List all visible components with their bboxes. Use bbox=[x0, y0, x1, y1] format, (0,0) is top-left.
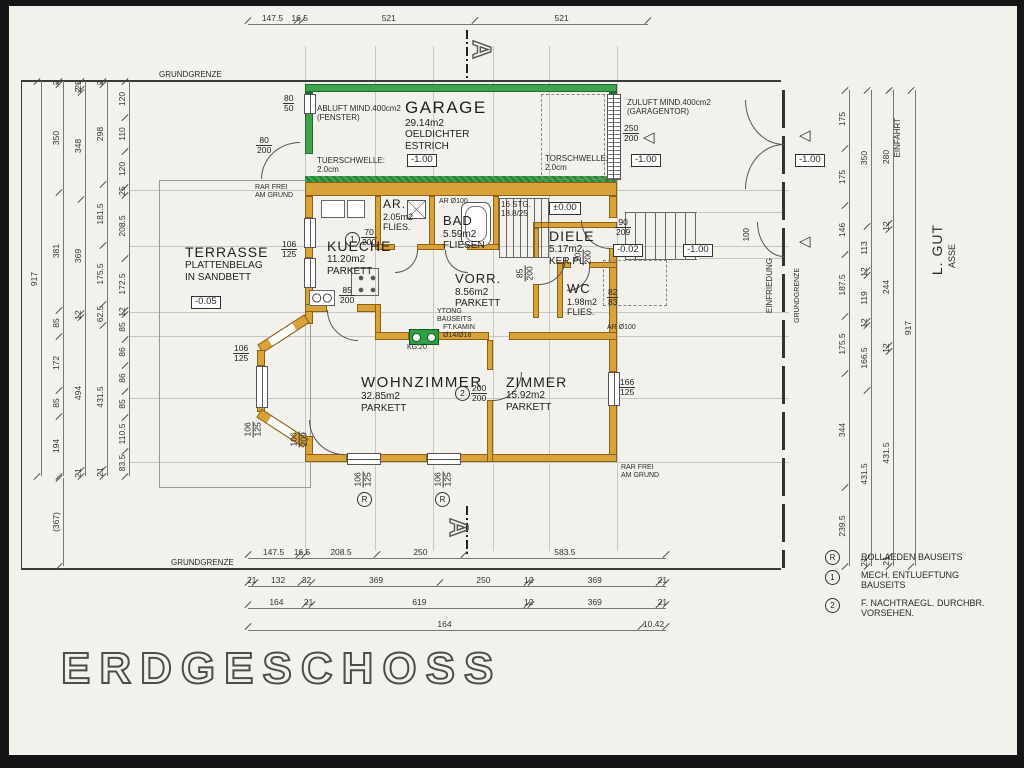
garage-door-size: 250200 bbox=[623, 124, 639, 143]
dim-chain-bottom-2: 21132323692501236921 bbox=[248, 576, 666, 588]
room-name: VORR. bbox=[455, 272, 501, 287]
room-floor: FLIES. bbox=[567, 307, 597, 317]
site-right-level: -1.00 bbox=[795, 154, 825, 167]
dim-value: 298 bbox=[95, 127, 105, 141]
room-line2: IN SANDBETT bbox=[185, 272, 268, 284]
garage-window-size: 8050 bbox=[283, 94, 294, 113]
dim-value: 85 bbox=[51, 398, 61, 407]
dim-value: 194 bbox=[51, 439, 61, 453]
room-kueche: KUECHE 11.20m2 PARKETT bbox=[327, 238, 391, 277]
street-name-2: ASSE bbox=[947, 244, 957, 268]
rar-line1: RAR FREI bbox=[255, 184, 288, 191]
dim-tick bbox=[907, 563, 914, 570]
dim-tick bbox=[644, 17, 651, 24]
dim-value: 348 bbox=[73, 138, 83, 152]
wc-window-size: 8283 bbox=[607, 288, 618, 307]
legend-text-durchbruch: F. NACHTRAEGL. DURCHBR. VORSEHEN. bbox=[861, 598, 985, 619]
dim-chain-bottom-4: 16410.42 bbox=[248, 620, 666, 632]
dim-tick bbox=[55, 475, 62, 482]
entrance-arrow-icon: ◁ bbox=[643, 128, 655, 146]
walkway-line bbox=[699, 212, 783, 213]
kamin-symbol bbox=[409, 329, 439, 345]
terrasse-level: -0.05 bbox=[191, 296, 221, 309]
legend-symbol-durchbruch: 2 bbox=[825, 598, 840, 613]
dim-value: (367) bbox=[51, 512, 61, 532]
dim-value: 369 bbox=[73, 249, 83, 263]
dim-value: 369 bbox=[588, 575, 602, 585]
dim-tick bbox=[841, 563, 848, 570]
zimmer-opening-size: 200200 bbox=[471, 384, 487, 403]
dim-value: 917 bbox=[903, 321, 913, 335]
drive-level: -1.00 bbox=[631, 154, 661, 167]
dim-value: 494 bbox=[73, 386, 83, 400]
dim-value: 166.5 bbox=[859, 347, 869, 368]
grundgrenze-line-top bbox=[21, 80, 781, 82]
room-floor: FLIES. bbox=[383, 222, 413, 232]
legend-entlueftung-line2: BAUSEITS bbox=[861, 580, 906, 590]
tuerschwelle-note: TUERSCHWELLE: 2.0cm bbox=[317, 156, 385, 174]
dim-tick bbox=[841, 202, 848, 209]
dim-tick bbox=[841, 370, 848, 377]
dim-value: 147.5 bbox=[263, 547, 284, 557]
dim-value: 350 bbox=[51, 131, 61, 145]
dim-chain-right-2: 3501131211912166.5431.521 bbox=[861, 90, 873, 566]
dim-tick bbox=[121, 414, 128, 421]
dim-tick bbox=[55, 387, 62, 394]
dim-value: 369 bbox=[588, 597, 602, 607]
rar-line2: AM GRUND bbox=[255, 192, 293, 199]
dim-tick bbox=[121, 255, 128, 262]
room-area: 15.92m2 bbox=[506, 390, 567, 402]
dim-tick bbox=[244, 601, 251, 608]
bad-door bbox=[445, 250, 468, 273]
dim-tick bbox=[99, 181, 106, 188]
dim-value: 250 bbox=[413, 547, 427, 557]
grundgrenze-line-bottom bbox=[21, 568, 781, 570]
dim-value: 110.5 bbox=[117, 424, 127, 445]
dim-tick bbox=[244, 551, 251, 558]
section-marker-a-top: A bbox=[466, 40, 497, 59]
garage-door-strip bbox=[607, 94, 621, 180]
dim-value: 187.5 bbox=[837, 274, 847, 295]
room-garage: GARAGE 29.14m2 OELDICHTER ESTRICH bbox=[405, 98, 487, 152]
dim-value: 431.5 bbox=[881, 443, 891, 464]
dim-value: 132 bbox=[271, 575, 285, 585]
entlueftung-marker: 1 bbox=[345, 232, 360, 247]
dim-value: 381 bbox=[51, 244, 61, 258]
legend-symbol-rolladen: R bbox=[825, 550, 840, 565]
dim-value: 85 bbox=[51, 319, 61, 328]
dim-value: 280 bbox=[881, 150, 891, 164]
gate-dimension: 100 bbox=[742, 228, 751, 241]
south-window-size-2: 106125 bbox=[434, 471, 453, 487]
grundgrenze-label-top: GRUNDGRENZE bbox=[159, 70, 222, 79]
abluft-line2: (FENSTER) bbox=[317, 113, 360, 122]
garden-gate bbox=[757, 222, 784, 257]
wall-ar-south bbox=[417, 244, 445, 250]
dim-value: 175.5 bbox=[837, 334, 847, 355]
kamin-kg-note: KG:20 bbox=[407, 344, 427, 352]
dim-chain-top: 147.516.5521521 bbox=[248, 14, 648, 26]
dim-value: 181.5 bbox=[95, 204, 105, 225]
room-zimmer: ZIMMER 15.92m2 PARKETT bbox=[506, 374, 567, 413]
dim-value: 113 bbox=[859, 241, 869, 255]
terrace-door-size: 106209 bbox=[290, 431, 309, 447]
dim-value: 521 bbox=[555, 13, 569, 23]
room-name: ZIMMER bbox=[506, 374, 567, 390]
rolladen-marker: R bbox=[435, 492, 450, 507]
ar-door-size: 70200 bbox=[361, 228, 377, 247]
dim-tick bbox=[841, 484, 848, 491]
dim-value: 146 bbox=[837, 222, 847, 236]
dim-chain-left-6: (367) bbox=[53, 478, 65, 566]
room-material-2: ESTRICH bbox=[405, 141, 487, 153]
dim-value: 120 bbox=[117, 162, 127, 176]
ar100-note-2: AR Ø100 bbox=[607, 324, 636, 332]
ar100-note: AR Ø100 bbox=[439, 198, 468, 206]
dim-tick bbox=[841, 312, 848, 319]
dim-value: 350 bbox=[859, 151, 869, 165]
room-line1: PLATTENBELAG bbox=[185, 260, 268, 272]
wall-wohn-zimmer bbox=[487, 340, 493, 370]
kamin-line1: FT.KAMIN bbox=[443, 324, 475, 331]
legend-entlueftung-line1: MECH. ENTLUEFTUNG bbox=[861, 570, 959, 580]
room-area: 11.20m2 bbox=[327, 254, 391, 266]
room-area: 29.14m2 bbox=[405, 118, 487, 130]
room-area: 1.98m2 bbox=[567, 297, 597, 307]
rar-frei-note-bottom: RAR FREI AM GRUND bbox=[621, 464, 659, 480]
room-name: DIELE bbox=[549, 228, 594, 244]
dim-value: 244 bbox=[881, 280, 891, 294]
dim-tick bbox=[121, 362, 128, 369]
dim-value: 86 bbox=[117, 374, 127, 383]
room-area: 5.59m2 bbox=[443, 229, 485, 241]
kueche-door-size: 85200 bbox=[339, 286, 355, 305]
dim-tick bbox=[841, 145, 848, 152]
legend-symbol-entlueftung: 1 bbox=[825, 570, 840, 585]
dim-chain-bottom-3: 164216191236921 bbox=[248, 598, 666, 610]
dim-value: 583.5 bbox=[554, 547, 575, 557]
dim-tick bbox=[121, 148, 128, 155]
stairs-line1: 16 STG. bbox=[501, 200, 531, 209]
dim-tick bbox=[55, 189, 62, 196]
dim-value: 208.5 bbox=[330, 547, 351, 557]
garage-window bbox=[304, 94, 316, 114]
wohnzimmer-window bbox=[347, 453, 381, 465]
wall-house-north bbox=[305, 182, 617, 196]
wall-house-south bbox=[459, 454, 617, 462]
section-marker-a-bottom: A bbox=[443, 518, 474, 537]
dim-value: 120 bbox=[117, 92, 127, 106]
room-name: BAD bbox=[443, 214, 485, 229]
room-floor: PARKETT bbox=[327, 266, 391, 278]
room-name: WC bbox=[567, 282, 597, 297]
dim-tick bbox=[33, 473, 40, 480]
floorplan-page: GRUNDGRENZE GRUNDGRENZE EINFRIEDUNG GRUN… bbox=[0, 0, 1024, 768]
dim-tick bbox=[472, 17, 479, 24]
dim-value: 175 bbox=[837, 112, 847, 126]
kitchen-counter bbox=[321, 200, 345, 218]
kamin-line2: Ø14/Ø18 bbox=[443, 332, 471, 339]
dim-tick bbox=[99, 242, 106, 249]
bay-window-size-2: 106125 bbox=[244, 421, 263, 437]
room-area: 2.05m2 bbox=[383, 212, 413, 222]
room-material-1: OELDICHTER bbox=[405, 129, 487, 141]
garage-level: -1.00 bbox=[407, 154, 437, 167]
stairs-note: 16 STG. 18.8/25 bbox=[501, 200, 531, 218]
dim-value: 619 bbox=[412, 597, 426, 607]
room-name: GARAGE bbox=[405, 98, 487, 118]
dim-chain-right-4: 917 bbox=[905, 90, 917, 566]
dim-value: 164 bbox=[269, 597, 283, 607]
dim-tick bbox=[436, 579, 443, 586]
ground-level: ±0.00 bbox=[549, 202, 581, 215]
dim-value: 239.5 bbox=[837, 516, 847, 537]
wall-house-west bbox=[305, 196, 313, 218]
kueche-window bbox=[304, 258, 316, 288]
dim-value: 208.5 bbox=[117, 216, 127, 237]
abluft-note: ABLUFT MIND.400cm2 (FENSTER) bbox=[317, 104, 401, 122]
durchbruch-marker: 2 bbox=[455, 386, 470, 401]
tuerschwelle-line2: 2.0cm bbox=[317, 165, 339, 174]
dim-tick bbox=[121, 473, 128, 480]
dim-value: 172.5 bbox=[117, 273, 127, 294]
room-floor: FLIESEN bbox=[443, 240, 485, 252]
legend-durchbruch-line2: VORSEHEN. bbox=[861, 608, 914, 618]
kueche-window bbox=[304, 218, 316, 248]
room-area: 8.56m2 bbox=[455, 287, 501, 299]
dim-value: 110 bbox=[117, 127, 127, 141]
bay-wall-mid bbox=[257, 350, 265, 366]
ytong-note: YTONG BAUSEITS bbox=[437, 308, 472, 324]
bay-window-size: 106125 bbox=[233, 344, 249, 363]
ar-door bbox=[395, 250, 418, 273]
dim-value: 521 bbox=[382, 13, 396, 23]
dim-tick bbox=[841, 251, 848, 258]
rar-line2: AM GRUND bbox=[621, 472, 659, 479]
dim-value: 85 bbox=[117, 322, 127, 331]
stairs-line2: 18.8/25 bbox=[501, 209, 528, 218]
dim-chain-left-2: 23503818517285194 bbox=[53, 81, 65, 476]
gate-leaf bbox=[745, 100, 784, 145]
entry-door-size: 90209 bbox=[615, 218, 631, 237]
abluft-line1: ABLUFT MIND.400cm2 bbox=[317, 104, 401, 113]
dim-tick bbox=[863, 223, 870, 230]
dim-tick bbox=[121, 114, 128, 121]
diele-door-size: 85200 bbox=[516, 265, 535, 281]
ytong-line1: YTONG bbox=[437, 308, 462, 315]
dim-chain-right-1: 175175146187.5175.5344239.5 bbox=[839, 90, 851, 566]
dim-tick bbox=[121, 336, 128, 343]
einfriedung-label: EINFRIEDUNG bbox=[765, 258, 774, 313]
dim-value: 917 bbox=[29, 271, 39, 285]
room-floor: PARKETT bbox=[506, 402, 567, 414]
dim-value: 250 bbox=[476, 575, 490, 585]
dim-tick bbox=[99, 321, 106, 328]
dim-tick bbox=[662, 551, 669, 558]
south-window-size: 106125 bbox=[354, 471, 373, 487]
zuluft-line2: (GARAGENTOR) bbox=[627, 107, 689, 116]
torschwelle-note: TORSCHWELLE: 2.0cm bbox=[545, 154, 608, 172]
dim-value: 85 bbox=[117, 400, 127, 409]
dim-chain-left-5: 12011012025208.5172.51285868685110.583.5 bbox=[119, 81, 131, 476]
dim-value: 369 bbox=[369, 575, 383, 585]
dim-value: 164 bbox=[437, 619, 451, 629]
legend-durchbruch-line1: F. NACHTRAEGL. DURCHBR. bbox=[861, 598, 985, 608]
dim-chain-right-3: 2801224412431.521 bbox=[883, 90, 895, 566]
wall-diele-west bbox=[533, 284, 539, 318]
wall-garage-left bbox=[305, 112, 313, 154]
dim-tick bbox=[863, 387, 870, 394]
dim-tick bbox=[907, 87, 914, 94]
stair-bottom-level: -1.00 bbox=[683, 244, 713, 257]
dim-tick bbox=[863, 87, 870, 94]
terrace-door bbox=[309, 420, 344, 455]
wall-house-south bbox=[379, 454, 427, 462]
dim-value: 344 bbox=[837, 423, 847, 437]
dim-value: 172 bbox=[51, 356, 61, 370]
room-name: AR. bbox=[383, 198, 413, 212]
gate-leaf bbox=[745, 144, 784, 189]
dim-chain-left-4: 2298181.5175.562.5431.521 bbox=[97, 81, 109, 476]
zuluft-note: ZULUFT MIND.400cm2 (GARAGENTOR) bbox=[627, 98, 711, 116]
wall-vorr-south bbox=[509, 332, 617, 340]
dim-tick bbox=[841, 87, 848, 94]
rar-line1: RAR FREI bbox=[621, 464, 654, 471]
torschwelle-line1: TORSCHWELLE: bbox=[545, 154, 608, 163]
legend-text-rolladen: ROLLAEDEN BAUSEITS bbox=[861, 552, 963, 562]
wall-ar-bad bbox=[429, 196, 435, 250]
tuerschwelle-line1: TUERSCHWELLE: bbox=[317, 156, 385, 165]
grundgrenze-label-right: GRUNDGRENZE bbox=[794, 268, 802, 323]
rar-frei-note-top: RAR FREI AM GRUND bbox=[255, 184, 293, 200]
wohnzimmer-window bbox=[427, 453, 461, 465]
room-floor: PARKETT bbox=[361, 403, 483, 415]
dim-value: 175.5 bbox=[95, 264, 105, 285]
dim-value: 62.5 bbox=[95, 306, 105, 323]
dim-value: 431.5 bbox=[95, 386, 105, 407]
wall-house-south bbox=[305, 454, 347, 462]
wc-door-size: 70200 bbox=[574, 249, 593, 265]
dim-chain-left-1: 917 bbox=[31, 81, 43, 476]
wall-vorr-south bbox=[375, 332, 409, 340]
bay-window bbox=[256, 366, 268, 408]
wall-wohn-zimmer bbox=[487, 400, 493, 462]
torschwelle-line2: 2.0cm bbox=[545, 163, 567, 172]
grundgrenze-label-bottom: GRUNDGRENZE bbox=[171, 558, 234, 567]
dim-tick bbox=[55, 307, 62, 314]
room-vorr: VORR. 8.56m2 PARKETT bbox=[455, 272, 501, 310]
ytong-line2: BAUSEITS bbox=[437, 316, 472, 323]
room-bad: BAD 5.59m2 FLIESEN bbox=[443, 214, 485, 252]
dim-tick bbox=[244, 17, 251, 24]
dim-value: 10.42 bbox=[643, 619, 664, 629]
kamin-note: FT.KAMIN Ø14/Ø18 bbox=[443, 324, 475, 340]
dim-value: 431.5 bbox=[859, 463, 869, 484]
entrance-arrow-icon: ◁ bbox=[799, 232, 811, 250]
legend-text-entlueftung: MECH. ENTLUEFTUNG BAUSEITS bbox=[861, 570, 959, 591]
zimmer-window-size: 166125 bbox=[619, 378, 635, 397]
dim-value: 147.5 bbox=[262, 13, 283, 23]
dim-tick bbox=[374, 551, 381, 558]
page-title: ERDGESCHOSS bbox=[61, 644, 502, 694]
dim-value: 175 bbox=[837, 170, 847, 184]
entrance-arrow-icon: ◁ bbox=[799, 126, 811, 144]
kueche-window-size: 106125 bbox=[281, 240, 297, 259]
room-wc: WC 1.98m2 FLIES. bbox=[567, 282, 597, 318]
einfahrt-label: EINFAHRT bbox=[893, 118, 902, 157]
dim-tick bbox=[55, 413, 62, 420]
dim-tick bbox=[244, 623, 251, 630]
dim-tick bbox=[77, 196, 84, 203]
wall-house-east bbox=[609, 196, 617, 218]
dim-value: 83.5 bbox=[117, 455, 127, 472]
garage-side-door-size: 80200 bbox=[256, 136, 272, 155]
plot-line-left bbox=[21, 80, 22, 570]
wall-garage-top bbox=[305, 84, 617, 92]
street-name: L. GUT bbox=[929, 224, 945, 275]
kitchen-counter bbox=[347, 200, 365, 218]
room-name: TERRASSE bbox=[185, 244, 268, 260]
rolladen-marker: R bbox=[357, 492, 372, 507]
dim-value: 86 bbox=[117, 348, 127, 357]
dim-tick bbox=[885, 87, 892, 94]
zuluft-line1: ZULUFT MIND.400cm2 bbox=[627, 98, 711, 107]
dim-tick bbox=[460, 551, 467, 558]
room-terrasse: TERRASSE PLATTENBELAG IN SANDBETT bbox=[185, 244, 268, 283]
dim-tick bbox=[121, 388, 128, 395]
dim-value: 119 bbox=[859, 291, 869, 305]
dim-tick bbox=[55, 333, 62, 340]
sink-symbol bbox=[309, 290, 335, 306]
dim-chain-left-3: 2523483691249421 bbox=[75, 81, 87, 476]
dim-chain-bottom-1: 147.516.5208.5250583.5 bbox=[248, 548, 666, 560]
entry-level: -0.02 bbox=[613, 244, 643, 257]
room-ar: AR. 2.05m2 FLIES. bbox=[383, 198, 413, 232]
